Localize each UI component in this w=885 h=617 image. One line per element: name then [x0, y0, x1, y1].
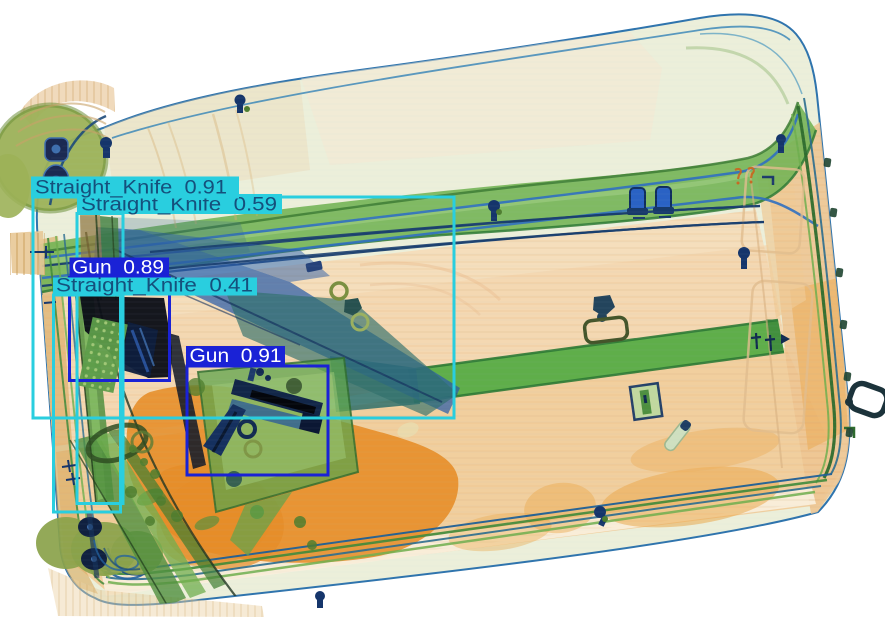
svg-text:Straight_Knife 0.41: Straight_Knife 0.41 [56, 276, 253, 297]
svg-text:Straight_Knife 0.91: Straight_Knife 0.91 [35, 178, 227, 199]
svg-text:Gun 0.91: Gun 0.91 [190, 346, 282, 367]
